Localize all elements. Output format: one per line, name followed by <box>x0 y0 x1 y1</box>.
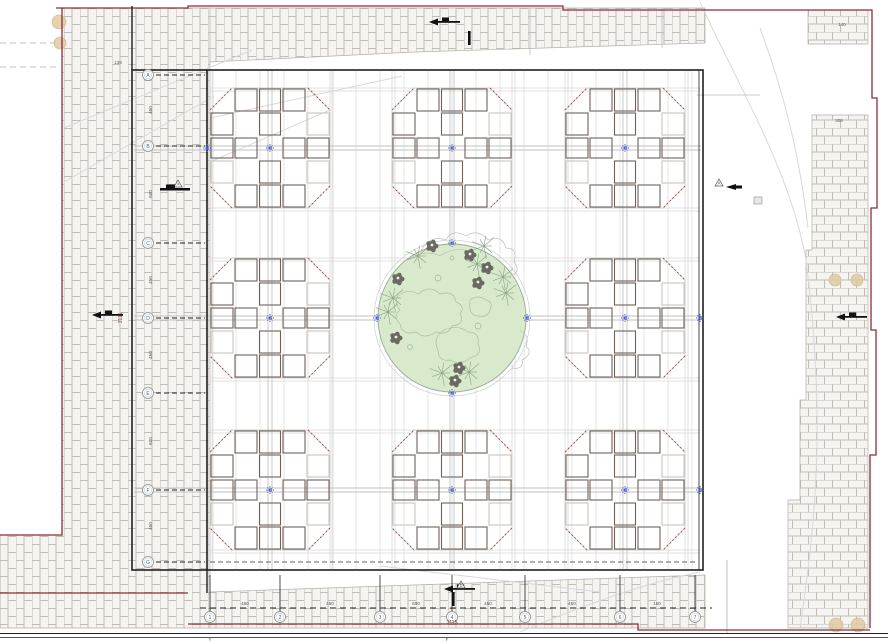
tree-canopy <box>472 278 477 283</box>
tree-highlight <box>454 379 457 382</box>
shrub-icon <box>829 274 841 286</box>
planter-square <box>307 503 329 525</box>
planter-square <box>638 259 660 281</box>
bubble-label: 6 <box>619 615 622 621</box>
tree-canopy <box>390 333 395 338</box>
grid-bubble: 7 <box>690 612 701 623</box>
dimension-text: 600 <box>148 190 153 198</box>
planter-square <box>590 89 612 111</box>
planter-square <box>662 331 684 353</box>
planter-square <box>638 185 660 207</box>
planter-square <box>260 113 281 135</box>
tree-canopy <box>489 266 494 271</box>
planter-square <box>307 331 329 353</box>
bubble-label: 1 <box>209 615 212 621</box>
planter-square <box>307 283 329 305</box>
tree-canopy <box>457 379 462 384</box>
dimension-text: 600 <box>412 601 420 606</box>
garden-lawn <box>378 244 526 392</box>
tree-canopy <box>477 277 482 282</box>
misc-text: Y <box>208 637 211 642</box>
planter-square <box>260 527 281 549</box>
tree-canopy <box>426 246 431 251</box>
shrub-icon <box>52 15 66 29</box>
planter-square <box>566 480 588 500</box>
planter-square <box>566 161 588 183</box>
planter-square <box>283 138 305 158</box>
planter-square <box>260 431 281 453</box>
tree-canopy <box>486 270 491 275</box>
planter-square <box>566 455 588 477</box>
level-bar-icon <box>468 31 471 45</box>
tree-canopy <box>431 248 436 253</box>
boundary-left <box>0 8 62 535</box>
tree-canopy <box>481 268 486 273</box>
tree-highlight <box>486 266 489 269</box>
misc-text: 138 <box>114 60 122 65</box>
tree-canopy <box>449 381 454 386</box>
planter-square <box>662 113 684 135</box>
dimension-text: 450 <box>241 601 249 606</box>
planter-square <box>260 455 281 477</box>
planter-square <box>260 161 281 183</box>
point-marker-icon <box>621 314 629 322</box>
tree-canopy <box>449 376 454 381</box>
arrow-tail <box>845 316 867 318</box>
section-label: A <box>718 181 721 186</box>
site-plan-svg: 12345674504506004504501503115ABCDEFG4506… <box>0 0 888 642</box>
grid-bubble: 3 <box>375 612 386 623</box>
tree-canopy <box>453 368 458 373</box>
planter-square <box>662 308 684 328</box>
planter-square <box>283 527 305 549</box>
bubble-label: F <box>146 488 149 494</box>
planter-square <box>211 480 233 500</box>
planter-square <box>211 331 233 353</box>
tree-highlight <box>397 277 400 280</box>
planter-square <box>211 283 233 305</box>
misc-text: 140 <box>838 22 846 27</box>
total-dimension-text: 3115 <box>447 620 458 626</box>
dimension-text: 450 <box>148 522 153 530</box>
planter-square <box>235 527 257 549</box>
tree-canopy <box>395 332 400 337</box>
grid-bubble: F <box>143 485 154 496</box>
planter-square <box>662 503 684 525</box>
planter-square <box>615 455 636 477</box>
tree-canopy <box>461 366 466 371</box>
starburst-ray <box>472 242 484 246</box>
planter-square <box>590 185 612 207</box>
point-marker-icon <box>266 486 274 494</box>
dimension-text: 450 <box>148 106 153 114</box>
planter-square <box>235 259 257 281</box>
tree-canopy <box>481 263 486 268</box>
planter-square <box>283 259 305 281</box>
planter-square <box>615 431 636 453</box>
tree-canopy <box>458 370 463 375</box>
planter-square <box>615 113 636 135</box>
dimension-text: 150 <box>653 601 661 606</box>
shrub-icon <box>851 274 863 286</box>
planter-square <box>662 283 684 305</box>
tree-canopy <box>453 363 458 368</box>
planter-square <box>307 480 329 500</box>
bubble-label: 3 <box>379 615 382 621</box>
planter-square <box>283 355 305 377</box>
bubble-label: 5 <box>524 615 527 621</box>
drawing-canvas[interactable]: 12345674504506004504501503115ABCDEFG4506… <box>0 0 888 642</box>
planter-square <box>590 138 612 158</box>
grid-bubble: 1 <box>205 612 216 623</box>
dimension-text: 450 <box>326 601 334 606</box>
arrow-tail <box>438 21 460 23</box>
tree-canopy <box>458 362 463 367</box>
bubble-label: G <box>146 560 150 566</box>
planter-square <box>590 431 612 453</box>
tree-highlight <box>431 244 434 247</box>
planter-square <box>638 308 660 328</box>
grid-bubble: 5 <box>520 612 531 623</box>
planter-square <box>260 331 281 353</box>
bubble-label: 7 <box>694 615 697 621</box>
planter-square <box>307 308 329 328</box>
point-marker-icon <box>621 486 629 494</box>
planter-square <box>566 503 588 525</box>
tree-canopy <box>477 285 482 290</box>
paving-topright-patch <box>808 10 868 44</box>
tree-canopy <box>398 336 403 341</box>
arrow-tail <box>101 314 123 316</box>
tree-canopy <box>464 255 469 260</box>
section-label: A <box>177 182 180 187</box>
bubble-label: C <box>146 241 150 247</box>
utility-box <box>754 197 762 204</box>
tree-canopy <box>390 338 395 343</box>
section-arrow-icon <box>726 184 742 190</box>
arrow-flag <box>105 311 112 315</box>
planter-square <box>615 527 636 549</box>
planter-square <box>235 138 257 158</box>
planter-square <box>283 308 305 328</box>
planter-square <box>662 138 684 158</box>
planter-square <box>307 455 329 477</box>
planter-square <box>283 185 305 207</box>
grid-bubble: D <box>143 313 154 324</box>
section-label: B <box>460 583 463 588</box>
planter-square <box>235 308 257 328</box>
garden-circle <box>374 233 530 396</box>
planter-square <box>590 480 612 500</box>
arrow-flag <box>849 313 856 317</box>
planter-square <box>615 89 636 111</box>
planter-square <box>590 527 612 549</box>
tree-canopy <box>469 249 474 254</box>
planter-square <box>615 355 636 377</box>
planter-square <box>638 527 660 549</box>
road-curve <box>760 28 808 228</box>
tree-canopy <box>464 250 469 255</box>
tree-canopy <box>426 241 431 246</box>
planter-square <box>662 161 684 183</box>
tree-canopy <box>392 274 397 279</box>
planter-square <box>235 480 257 500</box>
planter-square <box>638 89 660 111</box>
misc-text: F <box>446 637 449 642</box>
grid-bubble: B <box>143 141 154 152</box>
planter-square <box>235 89 257 111</box>
planter-square <box>566 331 588 353</box>
grid-bubble: A <box>143 70 154 81</box>
planter-square <box>590 355 612 377</box>
planter-square <box>615 259 636 281</box>
planter-square <box>615 331 636 353</box>
planter-square <box>211 161 233 183</box>
planter-square <box>260 355 281 377</box>
planter-square <box>260 185 281 207</box>
planter-square <box>638 138 660 158</box>
planter-square <box>590 259 612 281</box>
grid-bubble: 6 <box>615 612 626 623</box>
planter-square <box>615 161 636 183</box>
misc-text: 308 <box>835 118 843 123</box>
planter-square <box>235 355 257 377</box>
dimension-text: 450 <box>148 276 153 284</box>
planter-square <box>211 503 233 525</box>
tree-canopy <box>431 240 436 245</box>
planter-square <box>662 480 684 500</box>
planter-square <box>283 431 305 453</box>
tree-canopy <box>395 340 400 345</box>
planter-square <box>638 431 660 453</box>
tree-canopy <box>469 257 474 262</box>
paving-right-strip <box>788 115 868 628</box>
planter-square <box>235 185 257 207</box>
point-marker-icon <box>266 314 274 322</box>
planter-square <box>211 113 233 135</box>
planter-square <box>283 480 305 500</box>
planter-square <box>307 161 329 183</box>
tree-canopy <box>434 244 439 249</box>
dimension-text: 450 <box>148 351 153 359</box>
grid-bubble: 2 <box>275 612 286 623</box>
planter-square <box>307 113 329 135</box>
planter-square <box>260 89 281 111</box>
planter-square <box>211 138 233 158</box>
planter-square <box>260 503 281 525</box>
tree-canopy <box>480 281 485 286</box>
grid-bubble: C <box>143 238 154 249</box>
bubble-label: 2 <box>279 615 282 621</box>
planter-square <box>566 113 588 135</box>
dimension-text: 450 <box>484 601 492 606</box>
planter-square <box>566 308 588 328</box>
planter-square <box>566 283 588 305</box>
dimension-text: 450 <box>568 601 576 606</box>
planter-square <box>235 431 257 453</box>
planter-square <box>211 455 233 477</box>
point-marker-icon <box>266 144 274 152</box>
planter-square <box>638 355 660 377</box>
planter-square <box>211 308 233 328</box>
shrub-icon <box>54 37 66 49</box>
tree-highlight <box>395 336 398 339</box>
grid-bubble: E <box>143 388 154 399</box>
planter-square <box>615 503 636 525</box>
grid-bubble: G <box>143 557 154 568</box>
planter-square <box>615 185 636 207</box>
tree-highlight <box>469 253 472 256</box>
dimension-text: 600 <box>148 437 153 445</box>
tree-canopy <box>392 279 397 284</box>
section-triangle-icon: A <box>715 179 723 186</box>
point-marker-icon <box>621 144 629 152</box>
planter-square <box>307 138 329 158</box>
tree-highlight <box>458 366 461 369</box>
arrow-flag <box>442 18 449 22</box>
planter-square <box>260 259 281 281</box>
planter-square <box>566 138 588 158</box>
tree-canopy <box>400 277 405 282</box>
tree-canopy <box>454 375 459 380</box>
tree-canopy <box>397 273 402 278</box>
tree-highlight <box>477 281 480 284</box>
tree-canopy <box>486 262 491 267</box>
planter-square <box>638 480 660 500</box>
tree-canopy <box>472 253 477 258</box>
planter-square <box>662 455 684 477</box>
planter-square <box>590 308 612 328</box>
tree-canopy <box>397 281 402 286</box>
tree-canopy <box>454 383 459 388</box>
level-bar-icon <box>452 592 455 606</box>
bubble-label: D <box>146 316 150 322</box>
planter-square <box>615 283 636 305</box>
planter-square <box>260 283 281 305</box>
tree-canopy <box>472 283 477 288</box>
